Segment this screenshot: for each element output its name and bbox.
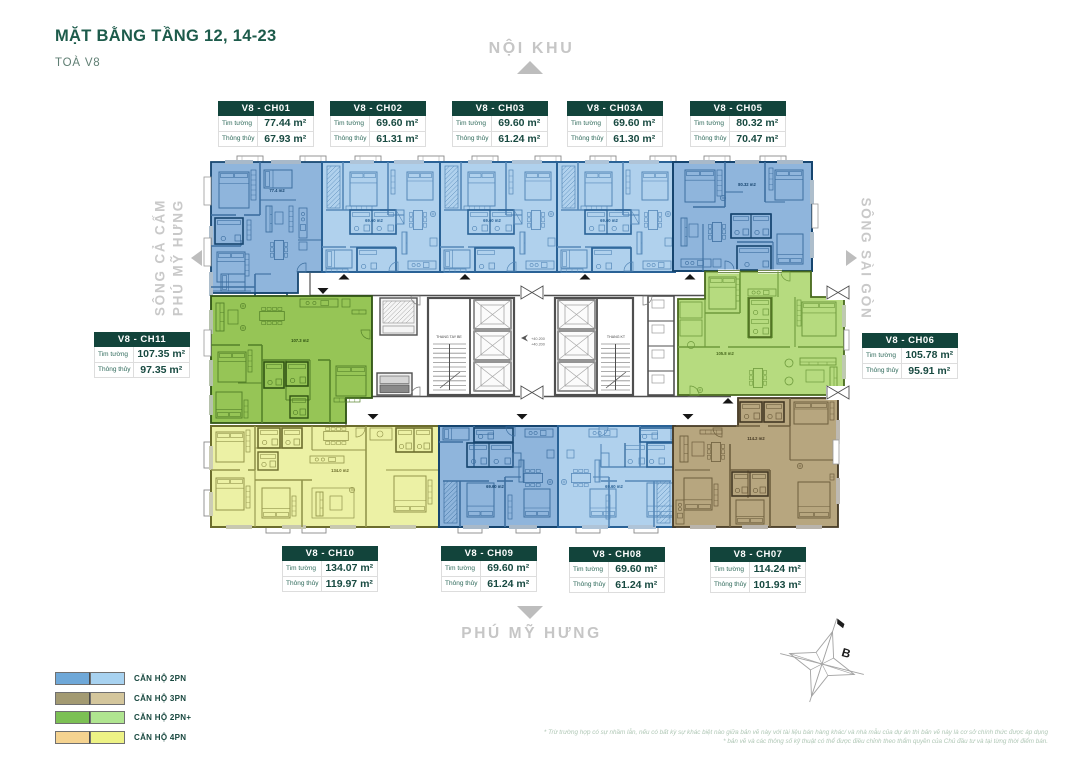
svg-text:THANG TAY BE: THANG TAY BE [436,335,462,339]
svg-text:B: B [840,645,853,661]
svg-text:69.60 m2: 69.60 m2 [486,484,504,489]
svg-text:+40.200: +40.200 [531,343,545,347]
svg-text:114.2 m2: 114.2 m2 [747,436,765,441]
svg-text:105.8 m2: 105.8 m2 [716,351,734,356]
svg-text:107.3 m2: 107.3 m2 [291,338,309,343]
svg-text:69.60 m2: 69.60 m2 [483,218,501,223]
svg-text:77.4 m2: 77.4 m2 [269,188,285,193]
svg-text:69.60 m2: 69.60 m2 [600,218,618,223]
svg-text:134.0 m2: 134.0 m2 [331,468,349,473]
svg-text:+40.200: +40.200 [531,337,545,341]
svg-text:THANG KT: THANG KT [607,335,626,339]
svg-text:80.32 m2: 80.32 m2 [738,182,756,187]
svg-text:69.60 m2: 69.60 m2 [605,484,623,489]
svg-text:69.60 m2: 69.60 m2 [365,218,383,223]
